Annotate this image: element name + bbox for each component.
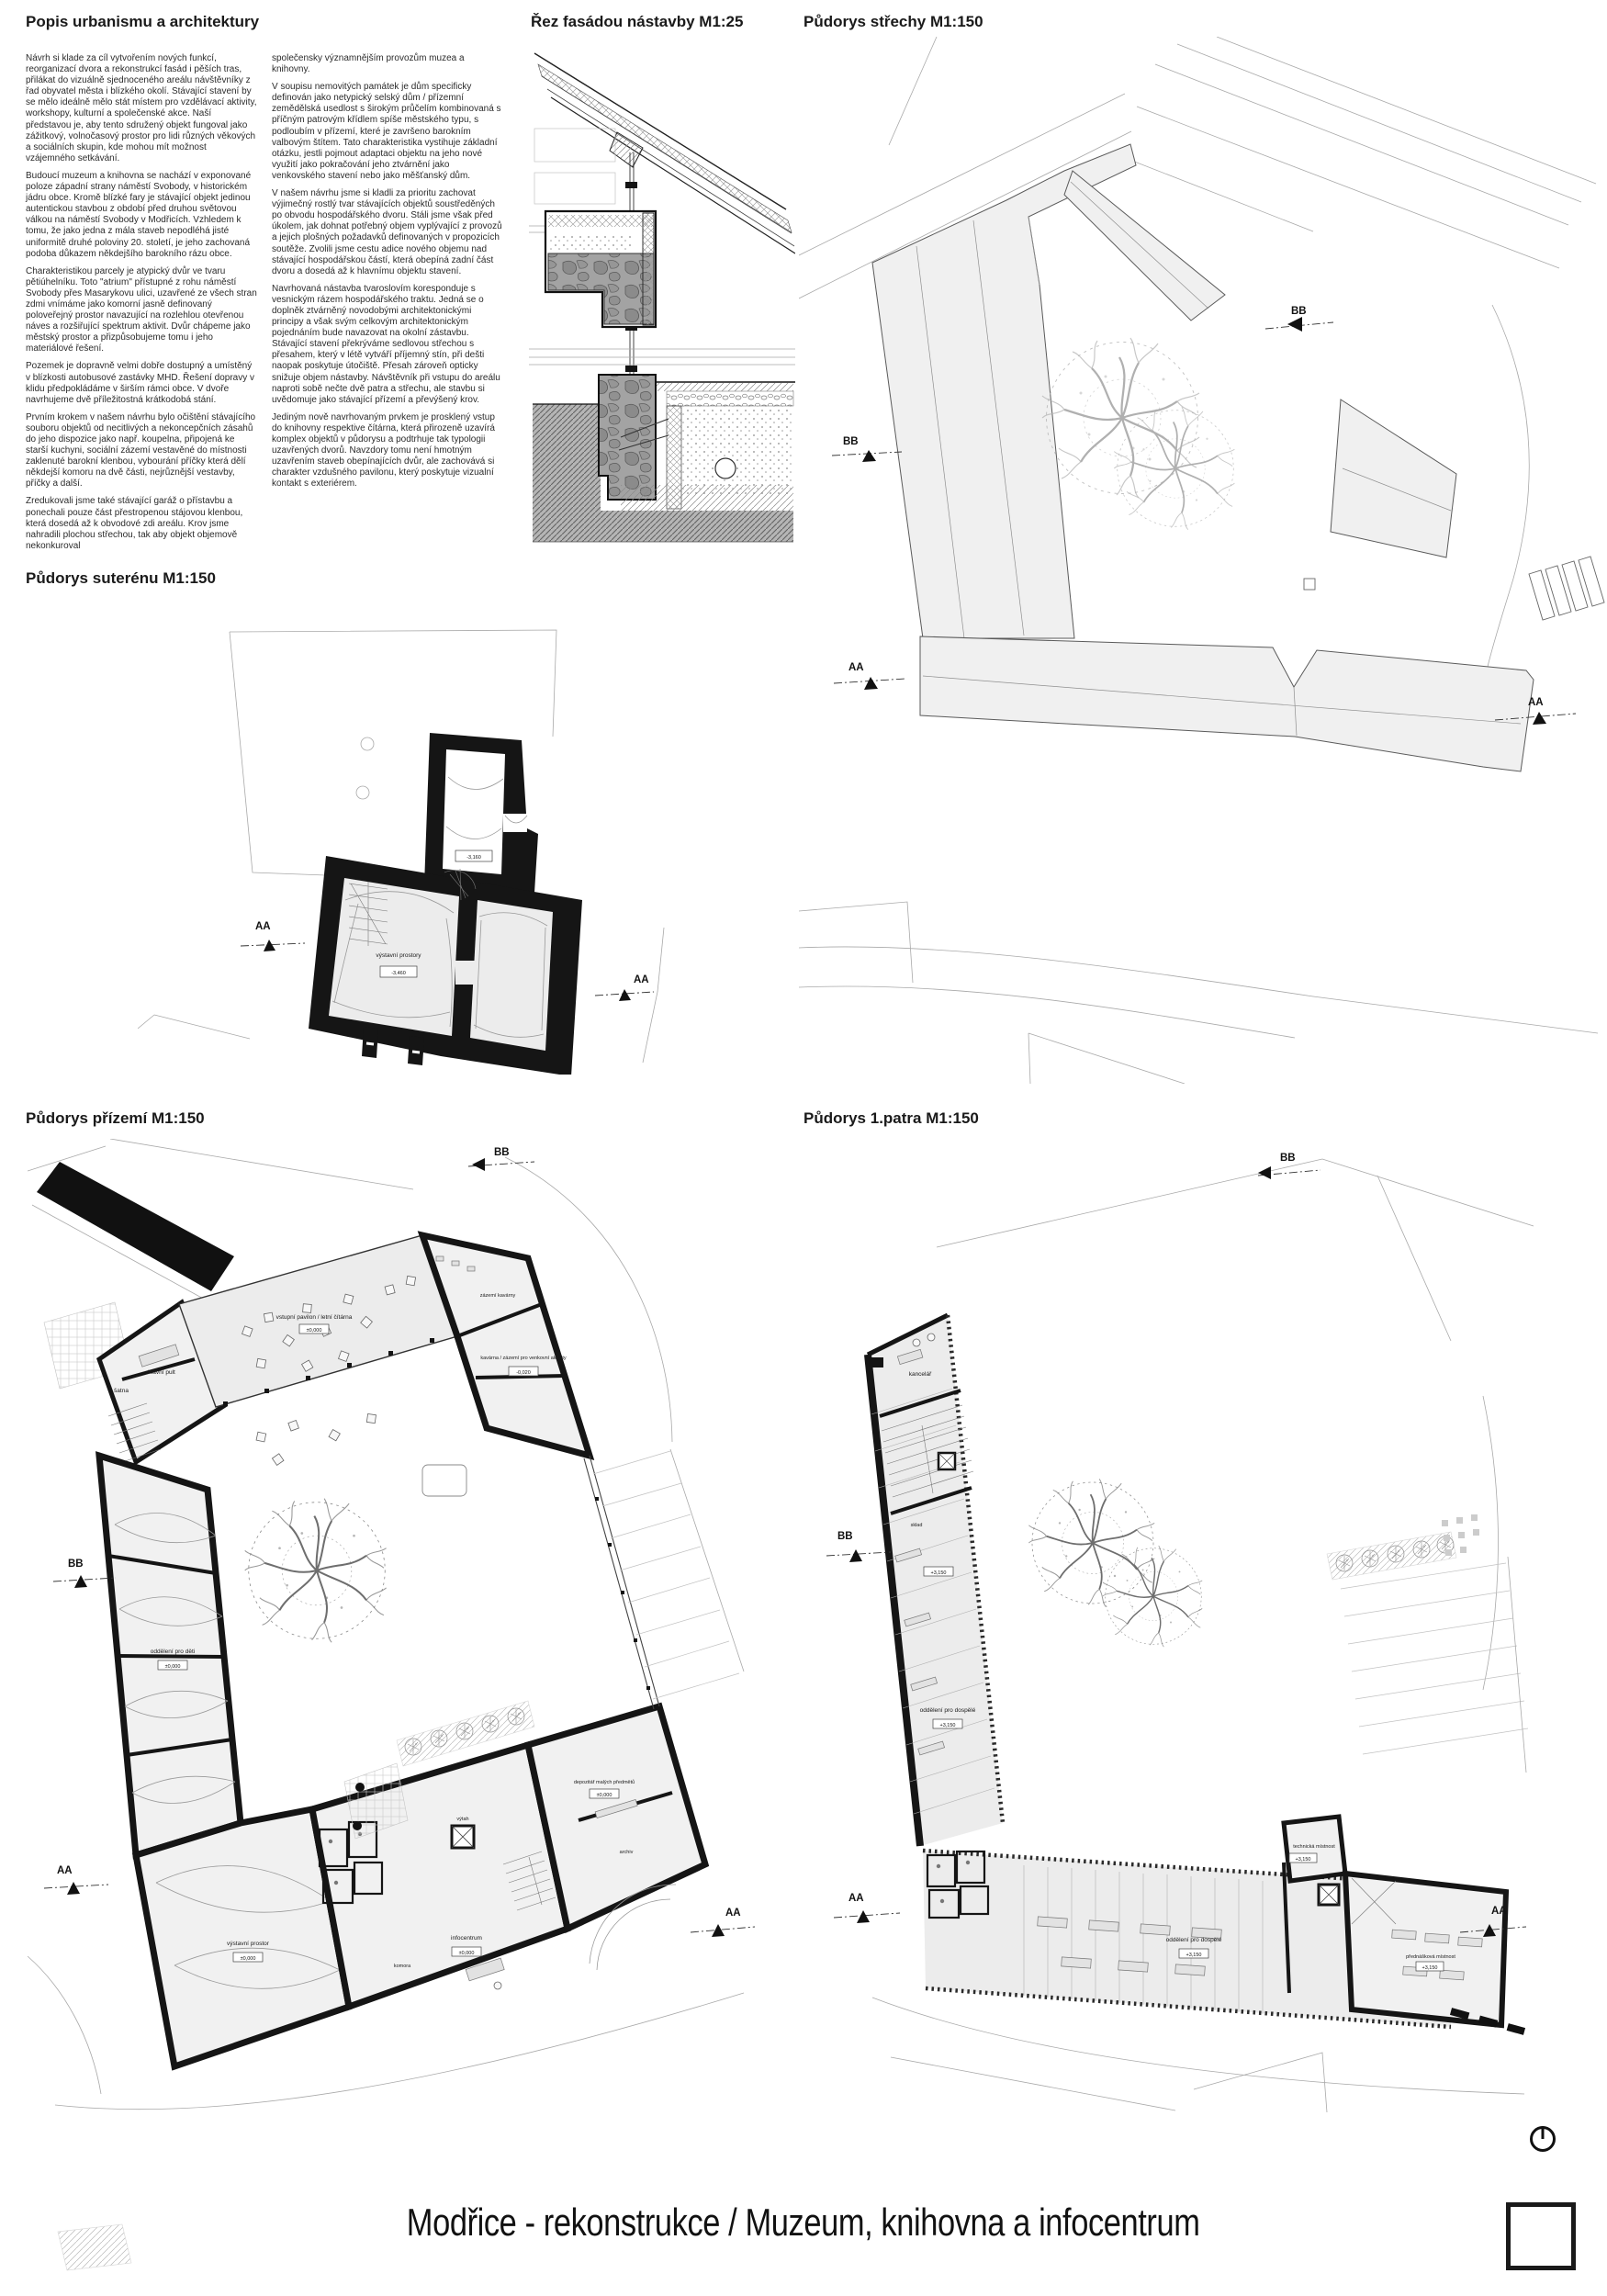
- basement-plan-drawing: -3,160 výstavní prostory -3,460 AA: [138, 597, 707, 1075]
- svg-text:BB: BB: [494, 1147, 510, 1158]
- svg-text:-3,160: -3,160: [466, 855, 481, 861]
- room-label: výstavní prostory: [376, 952, 421, 959]
- svg-text:vstupní pavilon / letní čítárn: vstupní pavilon / letní čítárna: [276, 1314, 353, 1321]
- section-marker-aa-left: AA: [834, 662, 905, 690]
- roof-plan-heading: Půdorys střechy M1:150: [803, 13, 983, 31]
- presentation-board: Popis urbanismu a architektury Návrh si …: [0, 0, 1607, 2296]
- svg-text:infocentrum: infocentrum: [451, 1935, 482, 1941]
- roof-plan-drawing: BB BB AA AA: [799, 37, 1607, 1084]
- svg-text:kancelář: kancelář: [909, 1371, 932, 1378]
- floor-lines: [529, 349, 795, 365]
- svg-text:±0,000: ±0,000: [459, 1951, 475, 1956]
- svg-text:hlavní pult: hlavní pult: [148, 1369, 175, 1376]
- west-wing: kancelář sklad +3,150 oddělení pro dospě…: [868, 1315, 1003, 1846]
- first-floor-plan-drawing: kancelář sklad +3,150 oddělení pro dospě…: [808, 1139, 1543, 2112]
- pergola-lines: [1341, 1557, 1528, 1773]
- logo-square: [1506, 2202, 1576, 2270]
- crosswalk: [1529, 557, 1604, 620]
- tree-row-band: [1327, 1532, 1456, 1580]
- courtyard-feature: [422, 1465, 466, 1496]
- paragraph: Budoucí muzeum a knihovna se nachází v e…: [26, 171, 257, 260]
- courtyard-trees: [1042, 338, 1234, 530]
- svg-text:sklad: sklad: [911, 1523, 923, 1528]
- technical-room: technická místnost: [1284, 1817, 1345, 1881]
- svg-text:BB: BB: [68, 1559, 84, 1570]
- section-marker-bb-top: BB: [1258, 1153, 1320, 1179]
- basement-plan-heading: Půdorys suterénu M1:150: [26, 569, 216, 588]
- svg-text:+3,150: +3,150: [1422, 1965, 1438, 1971]
- svg-text:AA: AA: [725, 1908, 741, 1919]
- description-heading: Popis urbanismu a architektury: [26, 13, 259, 31]
- svg-text:+3,150: +3,150: [931, 1570, 947, 1576]
- section-marker-aa-left: AA: [44, 1865, 108, 1895]
- svg-text:komora: komora: [394, 1964, 411, 1969]
- svg-text:technická místnost: technická místnost: [1293, 1844, 1335, 1850]
- svg-text:výtah: výtah: [456, 1817, 468, 1822]
- svg-text:BB: BB: [837, 1531, 853, 1542]
- svg-text:BB: BB: [843, 436, 859, 447]
- south-wing: oddělení pro dospělé +3,150 technická mí…: [923, 1817, 1524, 2032]
- first-floor-plan-heading: Půdorys 1.patra M1:150: [803, 1109, 979, 1128]
- paragraph: Charakteristikou parcely je atypický dvů…: [26, 266, 257, 355]
- paragraph: Jediným nově navrhovaným prvkem je prosk…: [272, 412, 503, 490]
- corridor-block: -3,160: [424, 733, 538, 893]
- ground-floor-plan-drawing: šatna hlavní pult příruční sklad: [28, 1139, 762, 2149]
- svg-text:BB: BB: [1291, 306, 1307, 317]
- paragraph: Pozemek je dopravně velmi dobře dostupný…: [26, 361, 257, 405]
- svg-text:AA: AA: [634, 974, 649, 985]
- svg-text:±0,000: ±0,000: [597, 1793, 612, 1798]
- svg-text:šatna: šatna: [114, 1388, 129, 1394]
- chimney: [1304, 579, 1315, 590]
- elevator: [938, 1453, 955, 1469]
- section-marker-aa-right: AA: [691, 1908, 755, 1937]
- svg-text:±0,000: ±0,000: [241, 1956, 256, 1962]
- cafe-block: zázemí kavárny kavárna / zázemí pro venk…: [422, 1235, 590, 1456]
- paragraph: Prvním krokem v našem návrhu bylo očiště…: [26, 412, 257, 490]
- svg-text:AA: AA: [57, 1865, 73, 1876]
- section-marker-bb-left: BB: [826, 1531, 891, 1562]
- svg-text:výstavní prostor: výstavní prostor: [227, 1941, 270, 1947]
- svg-text:+3,150: +3,150: [1186, 1953, 1202, 1958]
- svg-text:AA: AA: [1491, 1906, 1507, 1917]
- svg-text:zázemí kavárny: zázemí kavárny: [480, 1293, 516, 1299]
- svg-text:±0,000: ±0,000: [165, 1664, 181, 1670]
- section-marker-aa-right: AA: [595, 974, 654, 1001]
- svg-text:AA: AA: [848, 662, 864, 673]
- svg-text:-0,020: -0,020: [516, 1370, 531, 1376]
- description-column-2: společensky významnějším provozům muzea …: [272, 53, 503, 496]
- paragraph: Návrh si klade za cíl vytvořením nových …: [26, 53, 257, 164]
- paragraph: V soupisu nemovitých památek je dům spec…: [272, 82, 503, 182]
- svg-text:+3,150: +3,150: [1296, 1857, 1311, 1863]
- courtyard-chairs: [256, 1413, 376, 1465]
- svg-text:AA: AA: [255, 921, 271, 932]
- facade-section-heading: Řez fasádou nástavby M1:25: [531, 13, 743, 31]
- paragraph: Zredukovali jsme také stávající garáž o …: [26, 496, 257, 551]
- description-column-1: Návrh si klade za cíl vytvořením nových …: [26, 53, 257, 558]
- ground-plan-heading: Půdorys přízemí M1:150: [26, 1109, 205, 1128]
- neighbor-building-mass: [37, 1162, 234, 1291]
- svg-text:archiv: archiv: [620, 1850, 634, 1855]
- paragraph: V našem návrhu jsme si kladli za priorit…: [272, 188, 503, 277]
- svg-text:depozitář malých předmětů: depozitář malých předmětů: [574, 1779, 635, 1785]
- svg-text:oddělení pro dospělé: oddělení pro dospělé: [1166, 1937, 1222, 1943]
- north-arrow-icon: [1526, 2122, 1559, 2155]
- svg-text:-3,460: -3,460: [391, 971, 406, 976]
- paragraph: společensky významnějším provozům muzea …: [272, 53, 503, 75]
- courtyard-tree: [245, 1499, 387, 1643]
- section-marker-aa-left: AA: [834, 1893, 900, 1923]
- ground-assembly: [533, 375, 795, 542]
- svg-text:+3,150: +3,150: [940, 1723, 956, 1728]
- svg-text:±0,000: ±0,000: [307, 1328, 322, 1334]
- courtyard-trees: [1028, 1479, 1202, 1647]
- main-cellar-block: výstavní prostory -3,460: [309, 856, 582, 1075]
- svg-text:oddělení pro dospělé: oddělení pro dospělé: [920, 1707, 976, 1714]
- svg-text:kavárna / zázemí pro venkovní: kavárna / zázemí pro venkovní aktivity: [480, 1356, 566, 1361]
- west-wing: oddělení pro děti ±0,000: [99, 1456, 241, 1855]
- section-marker-aa-left: AA: [241, 921, 305, 951]
- section-marker-bb-left: BB: [832, 436, 902, 462]
- svg-text:AA: AA: [1528, 697, 1544, 708]
- upper-slab-and-stone-wall: [545, 211, 656, 327]
- paragraph: Navrhovaná nástavba tvaroslovím korespon…: [272, 284, 503, 406]
- facade-section-drawing: [529, 44, 795, 547]
- svg-text:oddělení pro děti: oddělení pro děti: [151, 1649, 195, 1655]
- svg-text:BB: BB: [1280, 1153, 1296, 1164]
- svg-text:přednášková místnost: přednášková místnost: [1406, 1954, 1455, 1960]
- section-marker-bb-right: BB: [1265, 306, 1333, 332]
- paving-setts: [1442, 1514, 1479, 1556]
- board-title: Modřice - rekonstrukce / Muzeum, knihovn…: [0, 2200, 1607, 2245]
- svg-text:AA: AA: [848, 1893, 864, 1904]
- lecture-room: přednášková místnost +3,150: [1345, 1874, 1506, 2025]
